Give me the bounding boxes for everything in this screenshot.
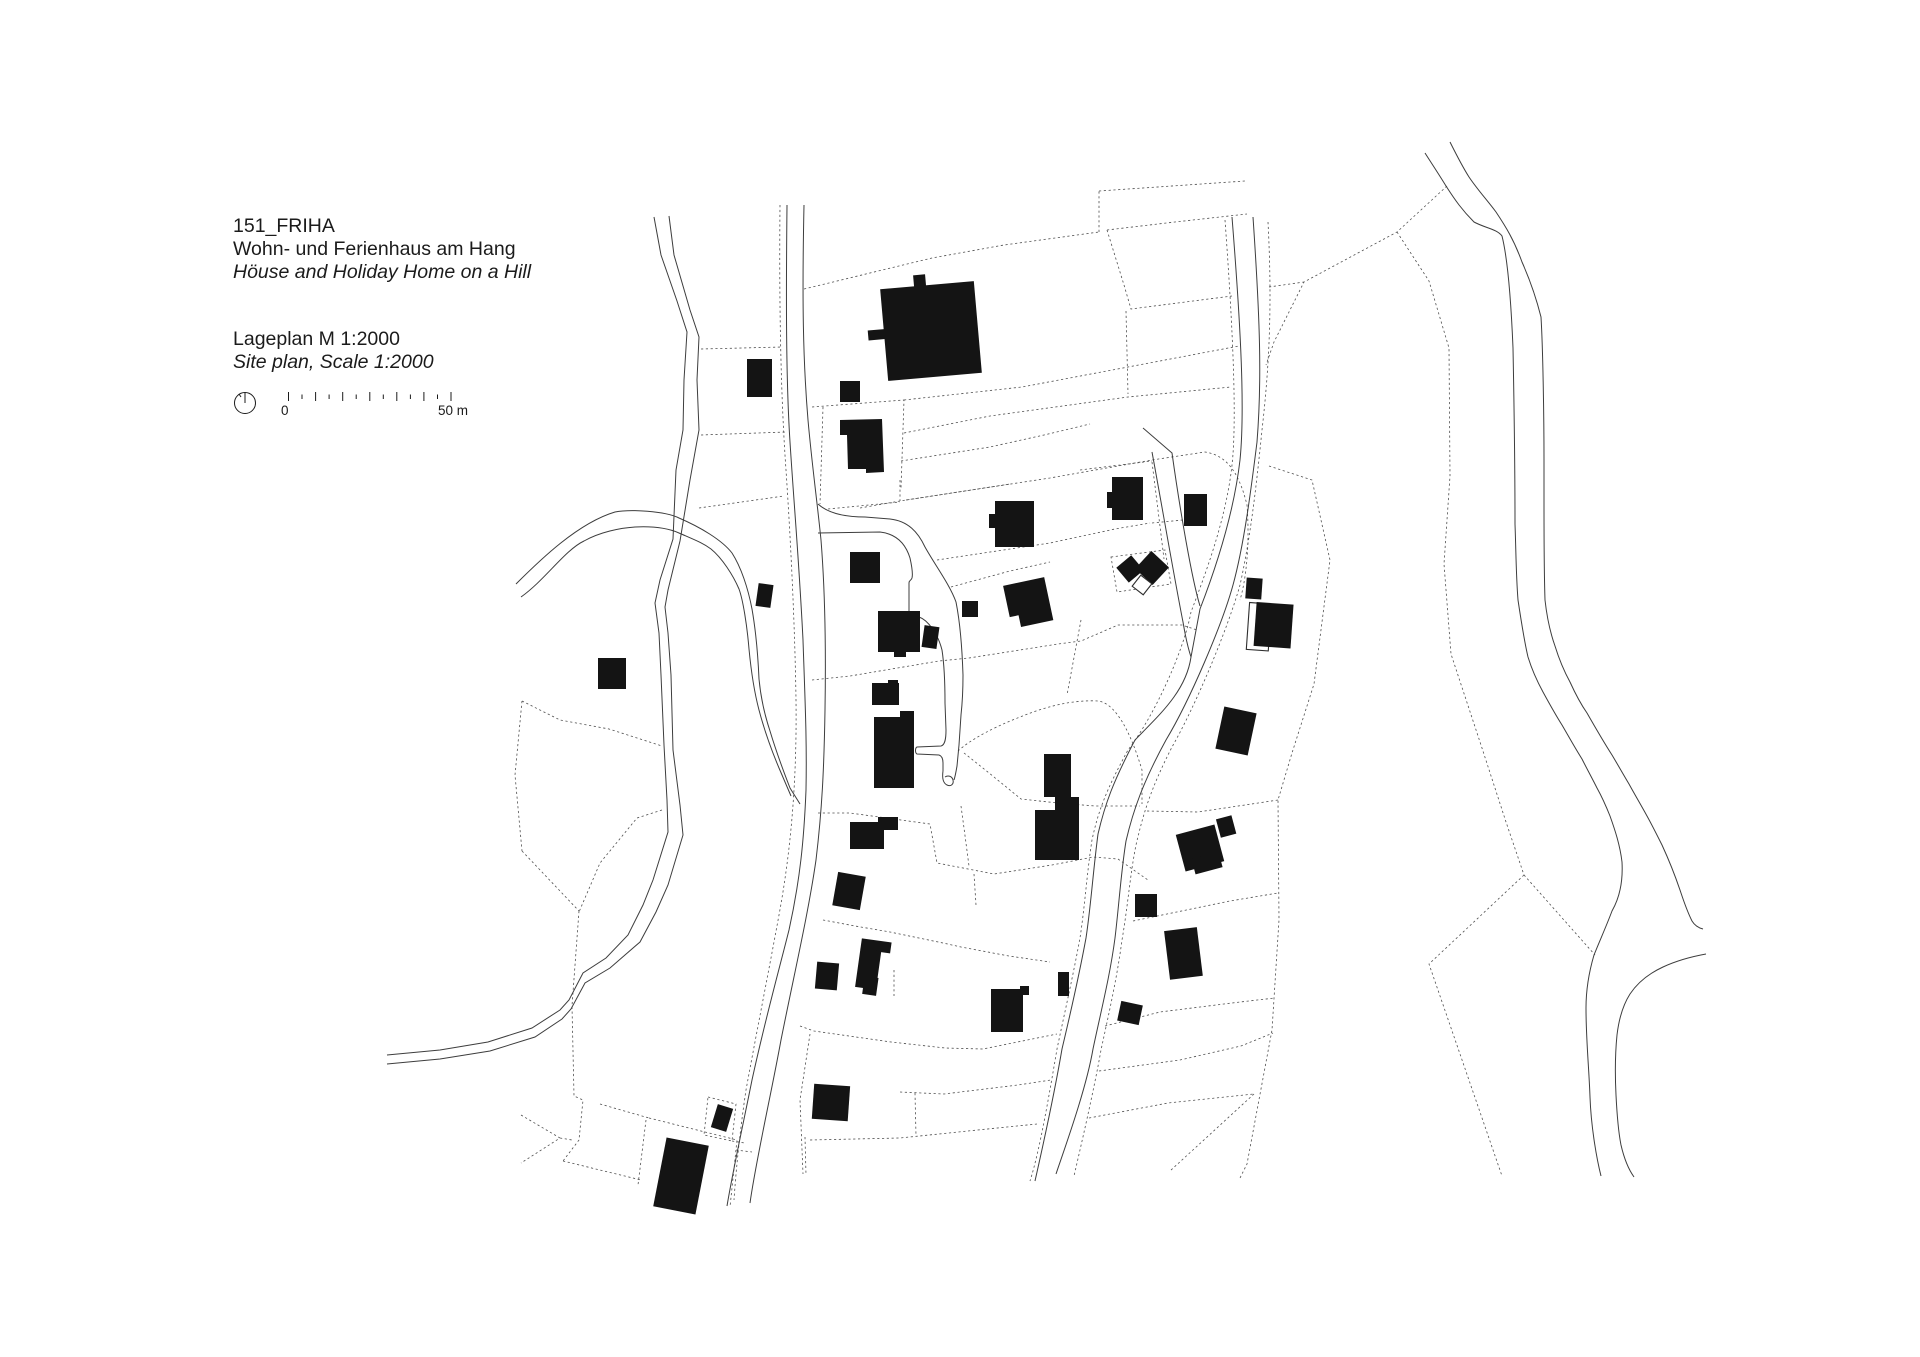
svg-text:Site plan, Scale 1:2000: Site plan, Scale 1:2000 bbox=[233, 351, 434, 373]
svg-text:0: 0 bbox=[281, 403, 289, 418]
svg-text:50 m: 50 m bbox=[438, 403, 468, 418]
svg-text:Lageplan M 1:2000: Lageplan M 1:2000 bbox=[233, 328, 400, 350]
svg-text:Wohn- und Ferienhaus am Hang: Wohn- und Ferienhaus am Hang bbox=[233, 238, 516, 260]
svg-text:Höuse and Holiday Home on a Hi: Höuse and Holiday Home on a Hill bbox=[233, 261, 532, 283]
svg-text:151_FRIHA: 151_FRIHA bbox=[233, 215, 335, 237]
